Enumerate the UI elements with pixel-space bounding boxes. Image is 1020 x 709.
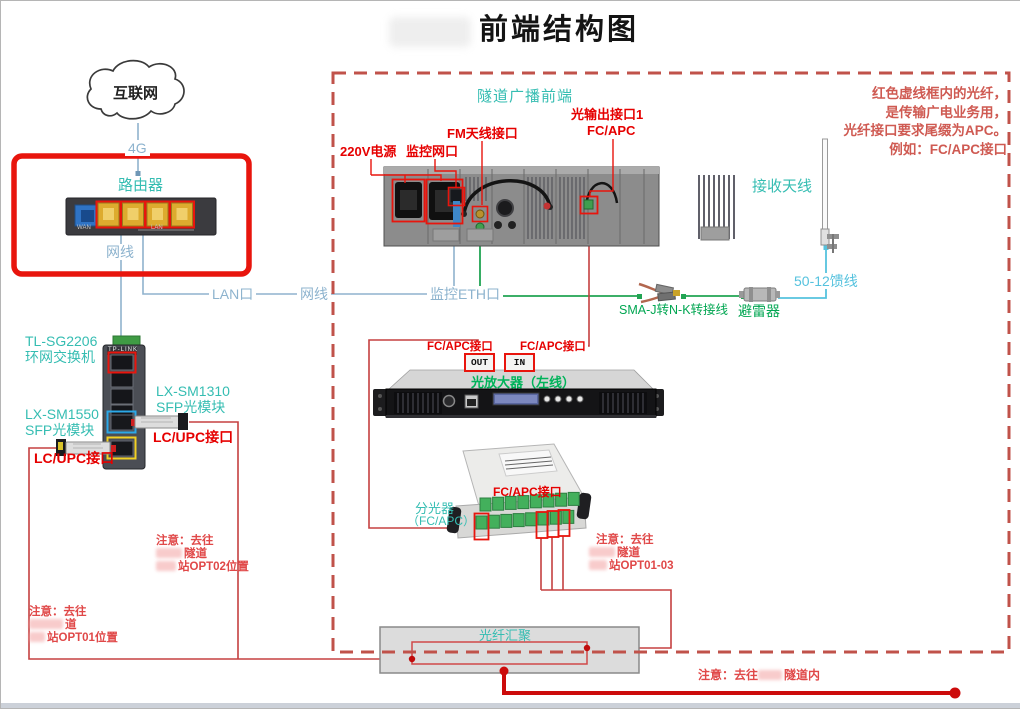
lightning-arrester-device	[739, 287, 780, 302]
tunnel-note-suffix: 隧道内	[784, 668, 820, 682]
note-opt01: 注意：去往 道 站OPT01位置	[29, 606, 118, 645]
diagram-page: 前端结构图 互联网 4G 路由器 WAN LAN 网线 LAN口 网线 监控ET…	[0, 0, 1020, 709]
note-opt01-line2: 道	[65, 619, 77, 631]
redacted-text	[156, 561, 176, 571]
sfp1550-port-label: LC/UPC接口	[34, 450, 114, 466]
sfp-module-1310	[131, 413, 188, 430]
page-bottom-edge	[1, 703, 1020, 708]
note-opt02-line2: 隧道	[184, 548, 207, 560]
note-opt0103-line2: 隧道	[617, 547, 640, 559]
line-dot	[637, 294, 642, 299]
apc-note-line3: 光纤接口要求尾缀为APC。	[843, 122, 1007, 141]
optical-port-label-1: 光输出接口1	[571, 108, 643, 123]
apc-note-line2: 是传输广电业务用，	[843, 104, 1007, 123]
antenna-label: 接收天线	[752, 178, 812, 195]
feeder-label: 50-12馈线	[792, 273, 860, 289]
monitor-port-label: 监控网口	[406, 145, 458, 160]
cable-label-under-router: 网线	[103, 244, 137, 260]
router-wan-label: WAN	[77, 225, 91, 232]
cloud-label-internet: 互联网	[113, 85, 158, 102]
apc-note-line1: 红色虚线框内的光纤，	[843, 85, 1007, 104]
redacted-text	[589, 560, 607, 570]
page-title: 前端结构图	[479, 14, 639, 47]
router-label: 路由器	[118, 177, 163, 194]
apc-note-line4: 例如：FC/APC接口	[843, 141, 1007, 160]
amp-in-badge: IN	[504, 353, 535, 372]
redacted-text	[758, 670, 782, 680]
sfp1310-model-label: LX-SM1310	[156, 383, 230, 399]
redacted-text	[29, 632, 45, 642]
broadcast-headend-rack	[384, 167, 734, 246]
redacted-text	[156, 548, 182, 558]
note-opt01-line1: 注意：去往	[29, 606, 87, 618]
link-label-4g: 4G	[125, 140, 150, 156]
tunnel-note: 注意：去往隧道内	[698, 669, 820, 682]
sfp1550-type-label: SFP光模块	[25, 422, 94, 438]
zone-label-tunnel-frontend: 隧道广播前端	[477, 88, 573, 105]
note-opt0103-line3: 站OPT01-03	[609, 560, 674, 572]
note-opt0103-line1: 注意：去往	[596, 534, 654, 546]
splitter-port-label: FC/APC接口	[493, 486, 562, 500]
line-dot	[136, 171, 141, 176]
switch-name-label: 环网交换机	[25, 349, 95, 365]
note-opt02-line3: 站OPT02位置	[178, 561, 249, 573]
fiber-aggregation-label: 光纤汇聚	[479, 629, 531, 644]
note-opt0103: 注意：去往 隧道 站OPT01-03	[589, 534, 674, 573]
redacted-title-text	[389, 17, 471, 47]
optical-port-label-2: FC/APC	[587, 124, 635, 139]
receiving-antenna	[821, 139, 839, 253]
fm-port-label: FM天线接口	[447, 127, 518, 142]
redacted-text	[589, 547, 615, 557]
arrester-label: 避雷器	[738, 303, 780, 319]
redacted-text	[29, 619, 63, 629]
power-label: 220V电源	[340, 145, 396, 160]
sfp1310-type-label: SFP光模块	[156, 399, 225, 415]
cyan-feeder-line	[778, 246, 826, 298]
sfp1550-model-label: LX-SM1550	[25, 406, 99, 422]
line-dot	[681, 294, 686, 299]
lan-port-label: LAN口	[209, 286, 256, 302]
sfp1310-port-label: LC/UPC接口	[153, 429, 233, 445]
adapter-label: SMA-J转N-K转接线	[619, 303, 728, 317]
note-opt02-line1: 注意：去往	[156, 535, 214, 547]
sma-adapter-device	[639, 284, 680, 302]
splitter-type-label: （FC/APC）	[407, 515, 475, 529]
amp-out-badge: OUT	[464, 353, 495, 372]
tunnel-note-prefix: 注意：去往	[698, 668, 758, 682]
eth-port-label: 监控ETH口	[427, 286, 503, 302]
apc-requirement-note: 红色虚线框内的光纤， 是传输广电业务用， 光纤接口要求尾缀为APC。 例如：FC…	[843, 85, 1007, 159]
switch-brand-label: TP-LINK	[108, 347, 138, 354]
note-opt01-line3: 站OPT01位置	[47, 632, 118, 644]
lan-cable-label: 网线	[297, 286, 331, 302]
note-opt02: 注意：去往 隧道 站OPT02位置	[156, 535, 249, 574]
switch-model-label: TL-SG2206	[25, 333, 97, 349]
amp-name-label: 光放大器（左线）	[471, 376, 575, 391]
router-lan-label: LAN	[151, 225, 163, 232]
